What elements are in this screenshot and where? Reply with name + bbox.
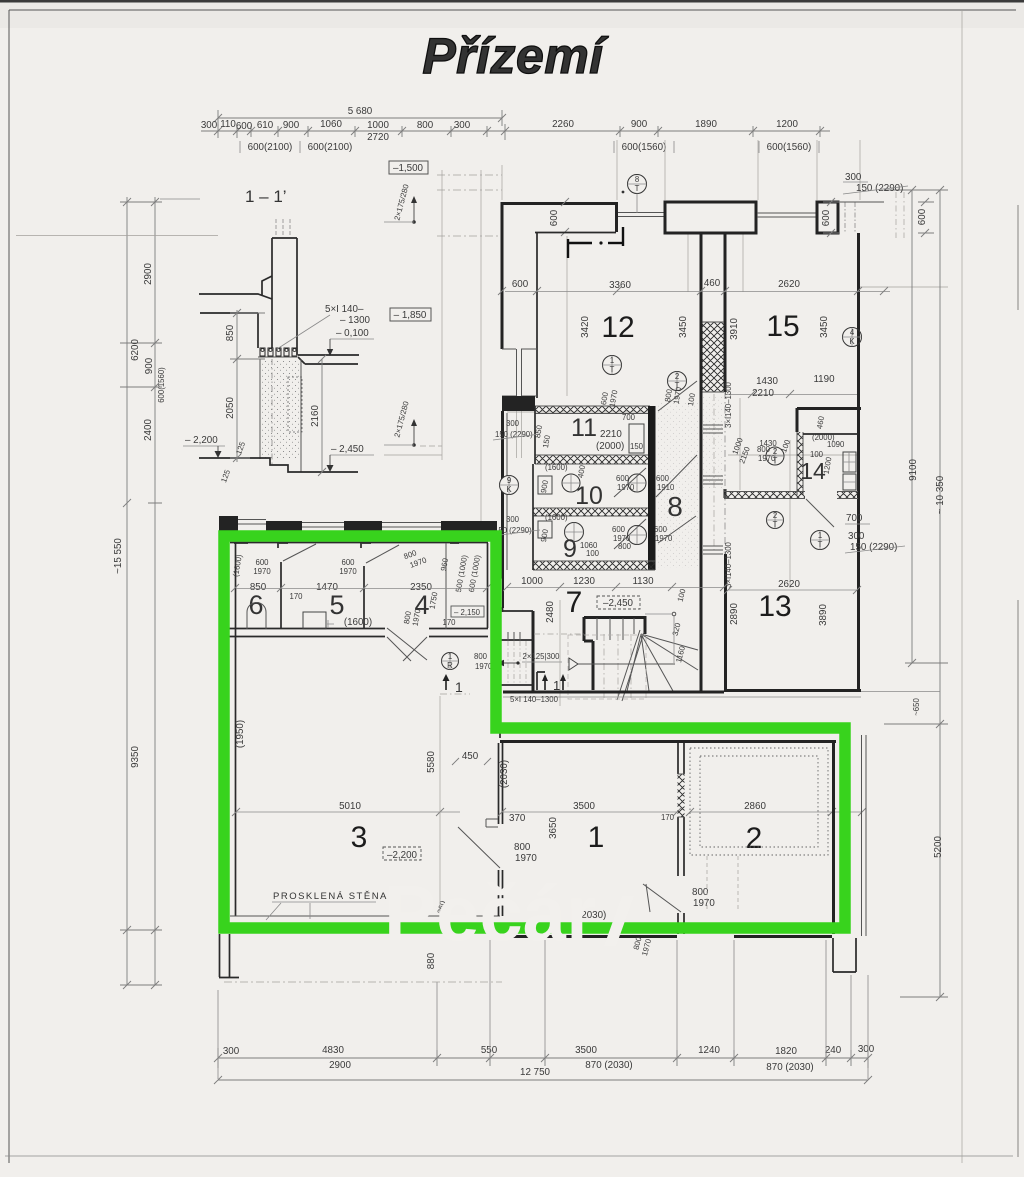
svg-text:2890: 2890 (729, 603, 740, 625)
svg-text:100: 100 (586, 549, 600, 558)
svg-text:~650: ~650 (912, 698, 921, 716)
svg-text:1: 1 (588, 821, 605, 854)
svg-text:600(2100): 600(2100) (248, 142, 293, 153)
svg-text:4: 4 (850, 328, 855, 337)
svg-text:2: 2 (675, 372, 679, 381)
svg-text:K: K (849, 337, 855, 346)
svg-text:–2,450: –2,450 (603, 598, 634, 609)
svg-text:9: 9 (563, 535, 577, 563)
svg-text:12 750: 12 750 (520, 1067, 551, 1078)
svg-text:2900: 2900 (329, 1060, 351, 1071)
svg-text:T: T (610, 365, 615, 374)
svg-text:T: T (818, 540, 823, 549)
svg-text:2210: 2210 (752, 388, 774, 399)
svg-text:300: 300 (506, 515, 520, 524)
svg-text:170: 170 (442, 618, 456, 627)
svg-text:1 – 1’: 1 – 1’ (245, 187, 287, 206)
svg-text:5580: 5580 (426, 751, 437, 773)
svg-text:600: 600 (255, 558, 269, 567)
svg-text:3890: 3890 (818, 604, 829, 626)
svg-text:900: 900 (144, 357, 155, 374)
svg-text:4830: 4830 (322, 1045, 344, 1056)
svg-text:800: 800 (618, 542, 632, 551)
svg-text:1: 1 (455, 679, 463, 695)
svg-text:300: 300 (848, 531, 865, 542)
svg-text:800: 800 (474, 652, 488, 661)
svg-text:– 0,100: – 0,100 (336, 328, 369, 339)
svg-text:1200: 1200 (776, 119, 798, 130)
svg-text:150: 150 (630, 442, 644, 451)
svg-text:300: 300 (223, 1046, 240, 1057)
svg-text:6200: 6200 (130, 339, 141, 361)
svg-text:600: 600 (616, 474, 630, 483)
svg-text:1230: 1230 (573, 576, 595, 587)
svg-text:K: K (506, 485, 512, 494)
svg-text:600: 600 (341, 558, 355, 567)
svg-text:370: 370 (509, 813, 526, 824)
svg-text:T: T (773, 520, 778, 529)
svg-text:2400: 2400 (143, 419, 154, 441)
svg-text:610: 610 (257, 120, 274, 131)
svg-text:T: T (635, 184, 640, 193)
svg-text:3450: 3450 (678, 316, 689, 338)
svg-text:170: 170 (661, 813, 675, 822)
svg-text:240: 240 (825, 1045, 842, 1056)
svg-text:800: 800 (692, 887, 709, 898)
svg-text:Přízemí: Přízemí (422, 28, 609, 84)
svg-text:9100: 9100 (908, 459, 919, 481)
svg-text:2×125|300: 2×125|300 (523, 652, 561, 661)
svg-text:(1600): (1600) (545, 463, 568, 472)
svg-text:1970: 1970 (253, 567, 271, 576)
svg-text:– 1300: – 1300 (340, 315, 371, 326)
svg-text:600(1560): 600(1560) (622, 142, 667, 153)
svg-text:300: 300 (454, 120, 471, 131)
svg-text:1090: 1090 (827, 440, 845, 449)
svg-text:2620: 2620 (778, 579, 800, 590)
svg-text:1430: 1430 (756, 376, 778, 387)
svg-text:870 (2030): 870 (2030) (585, 1060, 632, 1071)
svg-text:– 2,450: – 2,450 (331, 444, 364, 455)
svg-text:3420: 3420 (580, 316, 591, 338)
svg-text:800: 800 (514, 842, 531, 853)
svg-text:3910: 3910 (729, 318, 740, 340)
svg-text:~ 10 350: ~ 10 350 (935, 475, 946, 514)
svg-text:1: 1 (448, 652, 452, 661)
svg-text:Pečár: Pečár (384, 869, 597, 957)
svg-text:– 1,850: – 1,850 (394, 310, 427, 321)
svg-text:PROSKLENÁ STĚNA: PROSKLENÁ STĚNA (273, 891, 388, 902)
svg-text:300: 300 (858, 1044, 875, 1055)
svg-text:(1600): (1600) (545, 513, 568, 522)
svg-text:1470: 1470 (316, 582, 338, 593)
svg-text:8: 8 (635, 175, 639, 184)
svg-text:110: 110 (220, 119, 236, 130)
svg-text:~15 550: ~15 550 (113, 538, 124, 574)
svg-text:9: 9 (507, 476, 511, 485)
svg-text:800: 800 (417, 120, 434, 131)
svg-text:150 (2290): 150 (2290) (856, 183, 903, 194)
svg-text:1060: 1060 (320, 119, 342, 130)
svg-text:9350: 9350 (130, 746, 141, 768)
svg-text:870 (2030): 870 (2030) (766, 1062, 813, 1073)
svg-text:2: 2 (746, 822, 763, 855)
svg-text:450: 450 (462, 751, 479, 762)
svg-text:5×I 140–1300: 5×I 140–1300 (510, 695, 559, 704)
svg-text:600(2100): 600(2100) (308, 142, 353, 153)
svg-text:2480: 2480 (545, 601, 556, 623)
svg-text:550: 550 (481, 1045, 498, 1056)
svg-text:3650: 3650 (548, 817, 559, 839)
svg-text:3360: 3360 (609, 280, 631, 291)
svg-text:3450: 3450 (819, 316, 830, 338)
svg-text:600: 600 (917, 208, 928, 225)
svg-text:T: T (773, 456, 778, 465)
svg-text:–2,200: –2,200 (387, 850, 418, 861)
svg-text:700: 700 (846, 513, 863, 524)
svg-text:11: 11 (571, 414, 597, 442)
svg-text:850: 850 (250, 582, 267, 593)
svg-text:460: 460 (704, 278, 721, 289)
svg-text:1: 1 (818, 531, 822, 540)
svg-text:5×I 140–: 5×I 140– (325, 304, 364, 315)
svg-text:2720: 2720 (367, 132, 389, 143)
svg-text:300: 300 (506, 419, 520, 428)
svg-text:2050: 2050 (225, 397, 236, 419)
svg-text:600(1560): 600(1560) (767, 142, 812, 153)
svg-text:2210: 2210 (600, 429, 622, 440)
svg-text:2160: 2160 (310, 405, 321, 427)
svg-text:600: 600 (236, 121, 253, 132)
svg-text:600: 600 (512, 279, 529, 290)
svg-text:1130: 1130 (632, 576, 654, 587)
svg-text:600: 600 (549, 209, 560, 226)
svg-text:2350: 2350 (410, 582, 432, 593)
svg-text:900: 900 (283, 120, 300, 131)
svg-text:5 680: 5 680 (348, 106, 373, 117)
svg-text:170: 170 (289, 592, 303, 601)
svg-text:2860: 2860 (744, 801, 766, 812)
svg-text:7: 7 (566, 586, 583, 619)
svg-text:3500: 3500 (575, 1045, 597, 1056)
svg-text:15: 15 (766, 310, 799, 343)
svg-text:R: R (447, 661, 453, 670)
svg-text:5010: 5010 (339, 801, 361, 812)
svg-text:1240: 1240 (698, 1045, 720, 1056)
svg-text:1890: 1890 (695, 119, 717, 130)
svg-text:300: 300 (201, 120, 218, 131)
svg-text:1: 1 (610, 356, 614, 365)
svg-text:2: 2 (773, 447, 777, 456)
svg-text:3×I140–1300: 3×I140–1300 (724, 541, 733, 587)
svg-text:100: 100 (810, 450, 824, 459)
svg-text:5: 5 (329, 590, 344, 620)
svg-text:12: 12 (601, 311, 634, 344)
svg-text:2: 2 (773, 511, 777, 520)
svg-text:900: 900 (631, 119, 648, 130)
svg-text:– 2,150: – 2,150 (454, 608, 481, 617)
svg-text:300: 300 (845, 172, 862, 183)
svg-text:3: 3 (351, 821, 368, 854)
svg-text:– 2,200: – 2,200 (185, 435, 218, 446)
svg-text:1000: 1000 (367, 120, 389, 131)
svg-text:1970: 1970 (515, 853, 537, 864)
svg-text:(2000): (2000) (596, 441, 624, 452)
svg-text:2900: 2900 (143, 263, 154, 285)
svg-text:700: 700 (622, 413, 636, 422)
svg-text:600: 600 (821, 209, 832, 226)
svg-text:600: 600 (612, 525, 626, 534)
svg-text:13: 13 (758, 590, 791, 623)
svg-text:1190: 1190 (813, 374, 835, 385)
svg-text:5200: 5200 (933, 836, 944, 858)
svg-text:1970: 1970 (693, 898, 715, 909)
svg-text:3×I140–1300: 3×I140–1300 (724, 381, 733, 427)
svg-text:600(1560): 600(1560) (157, 367, 166, 403)
svg-text:1970: 1970 (617, 483, 635, 492)
svg-text:–1,500: –1,500 (393, 163, 424, 174)
svg-text:850: 850 (225, 324, 236, 341)
svg-text:2260: 2260 (552, 119, 574, 130)
svg-text:(2030): (2030) (499, 760, 510, 788)
svg-text:2620: 2620 (778, 279, 800, 290)
svg-text:1970: 1970 (339, 567, 357, 576)
svg-text:(1600): (1600) (344, 617, 372, 628)
svg-text:1000: 1000 (521, 576, 543, 587)
svg-text:3500: 3500 (573, 801, 595, 812)
svg-text:1820: 1820 (775, 1046, 797, 1057)
svg-text:(1950): (1950) (235, 720, 246, 748)
